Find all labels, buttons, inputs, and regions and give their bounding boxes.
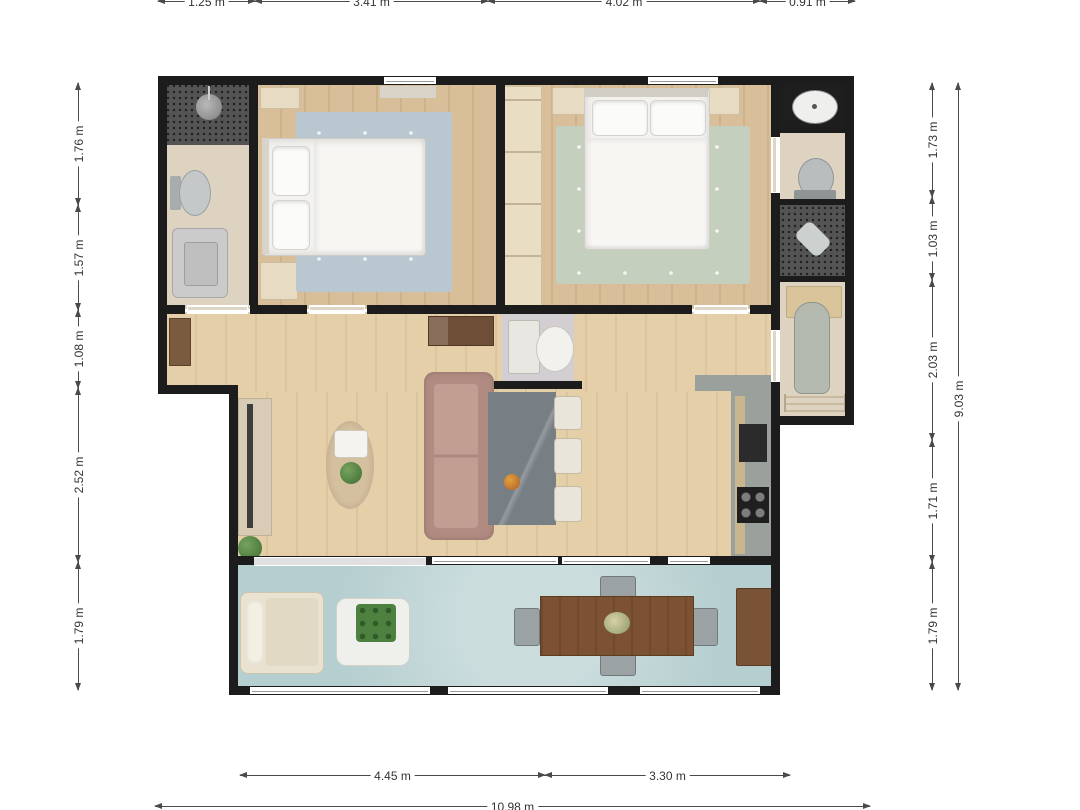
sideboard bbox=[428, 316, 494, 346]
window-living-2 bbox=[562, 557, 650, 564]
wall-laundry-bottom bbox=[771, 416, 854, 425]
wall-outer-left-lower bbox=[229, 385, 238, 695]
dim-left-5: 1.79 m bbox=[78, 562, 79, 690]
bedroom1-nightstand-bottom bbox=[260, 262, 298, 300]
window-bedroom2 bbox=[648, 77, 718, 84]
dim-label: 1.57 m bbox=[72, 235, 86, 280]
bedroom2-headboard bbox=[584, 88, 708, 97]
door-bedroom1 bbox=[309, 305, 365, 314]
shower-tray-inner bbox=[184, 242, 218, 286]
drying-rack bbox=[784, 394, 846, 412]
bedroom2-nightstand-right bbox=[708, 87, 740, 115]
door-bathroom-right bbox=[771, 137, 780, 193]
dim-top-4: 0.91 m bbox=[760, 1, 855, 2]
toilet-left-bowl bbox=[179, 170, 211, 216]
wall-wc-bottom bbox=[494, 381, 582, 389]
coffee-table bbox=[334, 430, 368, 458]
window-bedroom1 bbox=[384, 77, 436, 84]
dining-chair-3 bbox=[554, 486, 582, 522]
bedroom2-duvet bbox=[586, 138, 706, 246]
entry-door-leaf bbox=[169, 318, 191, 366]
dim-right-1: 1.73 m bbox=[932, 83, 933, 197]
dim-top-3: 4.02 m bbox=[488, 1, 760, 2]
dim-right-5: 1.79 m bbox=[932, 562, 933, 690]
bedroom1-window-sill bbox=[380, 86, 436, 98]
dim-label: 1.71 m bbox=[926, 479, 940, 524]
bedroom2-closet bbox=[504, 86, 542, 308]
bedroom1-pillow-1 bbox=[272, 146, 310, 196]
dim-bottom-2: 3.30 m bbox=[545, 775, 790, 776]
dim-right-4: 1.71 m bbox=[932, 440, 933, 562]
dim-label: 1.03 m bbox=[926, 216, 940, 261]
balcony-chair-left bbox=[514, 608, 540, 646]
dim-label: 1.76 m bbox=[72, 122, 86, 167]
bedroom1-pillow-2 bbox=[272, 200, 310, 250]
dim-top-2: 3.41 m bbox=[255, 1, 488, 2]
dim-bottom-1: 4.45 m bbox=[240, 775, 545, 776]
dim-label: 0.91 m bbox=[785, 0, 830, 9]
wall-left-step bbox=[158, 385, 238, 394]
dim-label: 2.03 m bbox=[926, 338, 940, 383]
bedroom2-nightstand-left bbox=[552, 87, 586, 115]
balcony-armchair-seat bbox=[266, 598, 318, 666]
balcony-chair-right bbox=[692, 608, 718, 646]
dim-label: 4.45 m bbox=[370, 769, 415, 783]
dim-label: 1.79 m bbox=[72, 604, 86, 649]
dining-chair-2 bbox=[554, 438, 582, 474]
lamp-stem bbox=[208, 86, 210, 100]
wall-rightcol-div1 bbox=[780, 127, 854, 133]
dim-label: 1.08 m bbox=[72, 327, 86, 372]
window-living-1 bbox=[432, 557, 558, 564]
wall-mid-seg4 bbox=[750, 305, 780, 314]
balcony-planter bbox=[356, 604, 396, 642]
kitchen-counter-edge bbox=[735, 396, 745, 554]
wall-bedroom1-bedroom2 bbox=[496, 83, 505, 305]
dining-table-stone bbox=[488, 392, 556, 525]
kitchen-sink-unit bbox=[739, 424, 767, 462]
coffee-table-plant bbox=[340, 462, 362, 484]
balcony-armchair-cushion bbox=[246, 600, 264, 664]
tv-screen bbox=[247, 404, 253, 528]
balcony-bench bbox=[736, 588, 772, 666]
dim-top-1: 1.25 m bbox=[158, 1, 255, 2]
sofa-seat bbox=[434, 384, 478, 528]
dim-label: 1.25 m bbox=[184, 0, 229, 9]
bedroom2-pillow-1 bbox=[592, 100, 648, 136]
door-laundry bbox=[771, 330, 780, 382]
bedroom2-pillow-2 bbox=[650, 100, 706, 136]
wall-rightcol-div3 bbox=[780, 276, 854, 282]
bedroom1-duvet bbox=[314, 141, 422, 251]
table-centerpiece bbox=[604, 612, 630, 634]
wall-outer-top bbox=[158, 76, 854, 85]
door-bedroom2 bbox=[694, 305, 748, 314]
fruit-bowl bbox=[504, 474, 520, 490]
dim-left-4: 2.52 m bbox=[78, 388, 79, 562]
dim-left-2: 1.57 m bbox=[78, 205, 79, 310]
dim-label: 4.02 m bbox=[602, 0, 647, 9]
floor-plan-canvas: 1.25 m 3.41 m 4.02 m 0.91 m 1.76 m 1.57 … bbox=[0, 0, 1080, 810]
dim-left-3: 1.08 m bbox=[78, 310, 79, 388]
wc-toilet-bowl bbox=[536, 326, 574, 372]
dim-label: 3.41 m bbox=[349, 0, 394, 9]
window-balcony-3 bbox=[640, 687, 760, 694]
dim-label: 3.30 m bbox=[645, 769, 690, 783]
dim-left-1: 1.76 m bbox=[78, 83, 79, 205]
dim-right-2: 1.03 m bbox=[932, 197, 933, 280]
stove-cooktop bbox=[737, 487, 769, 523]
sliding-door-balcony bbox=[254, 557, 426, 566]
dim-right-3: 2.03 m bbox=[932, 280, 933, 440]
ironing-board bbox=[794, 302, 830, 394]
window-living-3 bbox=[668, 557, 710, 564]
wall-mid-seg2 bbox=[250, 305, 307, 314]
bedroom1-nightstand-top bbox=[260, 87, 300, 109]
wall-outer-left-upper bbox=[158, 76, 167, 394]
dim-label: 9.03 m bbox=[952, 376, 966, 421]
wall-mid-seg1 bbox=[158, 305, 185, 314]
dim-right-total: 9.03 m bbox=[958, 83, 959, 690]
dim-label: 1.79 m bbox=[926, 604, 940, 649]
dim-bottom-total: 10.98 m bbox=[155, 806, 870, 807]
vanity-sink-drain bbox=[812, 104, 817, 109]
bedroom1-headboard bbox=[262, 138, 269, 254]
dim-label: 2.52 m bbox=[72, 453, 86, 498]
tv-console bbox=[238, 398, 272, 536]
dim-label: 1.73 m bbox=[926, 118, 940, 163]
dim-label: 10.98 m bbox=[487, 800, 538, 810]
door-bathroom-left bbox=[187, 305, 248, 314]
wall-bath-bedroom1 bbox=[249, 83, 258, 305]
window-balcony-1 bbox=[250, 687, 430, 694]
window-balcony-2 bbox=[448, 687, 608, 694]
dining-chair-1 bbox=[554, 396, 582, 430]
wall-rightcol-div2 bbox=[780, 199, 854, 205]
wall-mid-seg3 bbox=[367, 305, 692, 314]
